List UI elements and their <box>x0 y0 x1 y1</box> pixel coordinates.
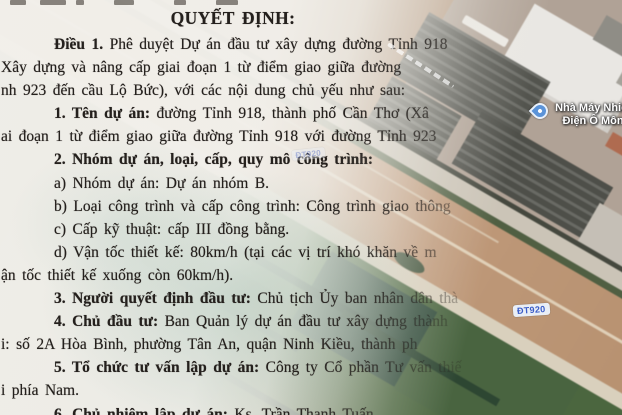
decision-body: Điều 1. Phê duyệt Dự án đầu tư xây dựng … <box>0 33 622 415</box>
road-badge-dt920: ĐT920 <box>513 303 550 318</box>
doc-line: 6. Chủ nhiệm lập dự án: Ks. Trần Thanh T… <box>0 403 622 415</box>
doc-line: b) Loại công trình và cấp công trình: Cô… <box>0 195 622 218</box>
doc-line: ận tốc thiết kế xuống còn 60km/h). <box>0 264 622 287</box>
doc-line: Điều 1. Phê duyệt Dự án đầu tư xây dựng … <box>0 33 622 56</box>
decision-document: QUYẾT ĐỊNH: Điều 1. Phê duyệt Dự án đầu … <box>0 0 622 415</box>
doc-line: Xây dựng và nâng cấp giai đoạn 1 từ điểm… <box>0 56 622 79</box>
decision-title: QUYẾT ĐỊNH: <box>0 8 466 29</box>
doc-line: c) Cấp kỹ thuật: cấp III đồng bằng. <box>0 218 622 241</box>
doc-line: d) Vận tốc thiết kế: 80km/h (tại các vị … <box>0 241 622 264</box>
poi-label: Nhà Máy Nhiệt Điện Ô Môn <box>550 102 622 128</box>
doc-line: i: số 2A Hòa Bình, phường Tân An, quận N… <box>0 333 622 356</box>
doc-line: 1. Tên dự án: đường Tỉnh 918, thành phố … <box>0 102 622 125</box>
doc-line: a) Nhóm dự án: Dự án nhóm B. <box>0 172 622 195</box>
doc-line: ai đoạn 1 từ điểm giao giữa đường Tỉnh 9… <box>0 125 622 148</box>
doc-line: i phía Nam. <box>0 379 622 402</box>
composite-image: QUYẾT ĐỊNH: Điều 1. Phê duyệt Dự án đầu … <box>0 0 622 415</box>
poi-label-line2: Điện Ô Môn <box>550 115 622 128</box>
doc-line: 5. Tổ chức tư vấn lập dự án: Công ty Cổ … <box>0 356 622 379</box>
doc-line: nh 923 đến cầu Lộ Bức), với các nội dung… <box>0 79 622 102</box>
poi-label-line1: Nhà Máy Nhiệt <box>550 102 622 115</box>
